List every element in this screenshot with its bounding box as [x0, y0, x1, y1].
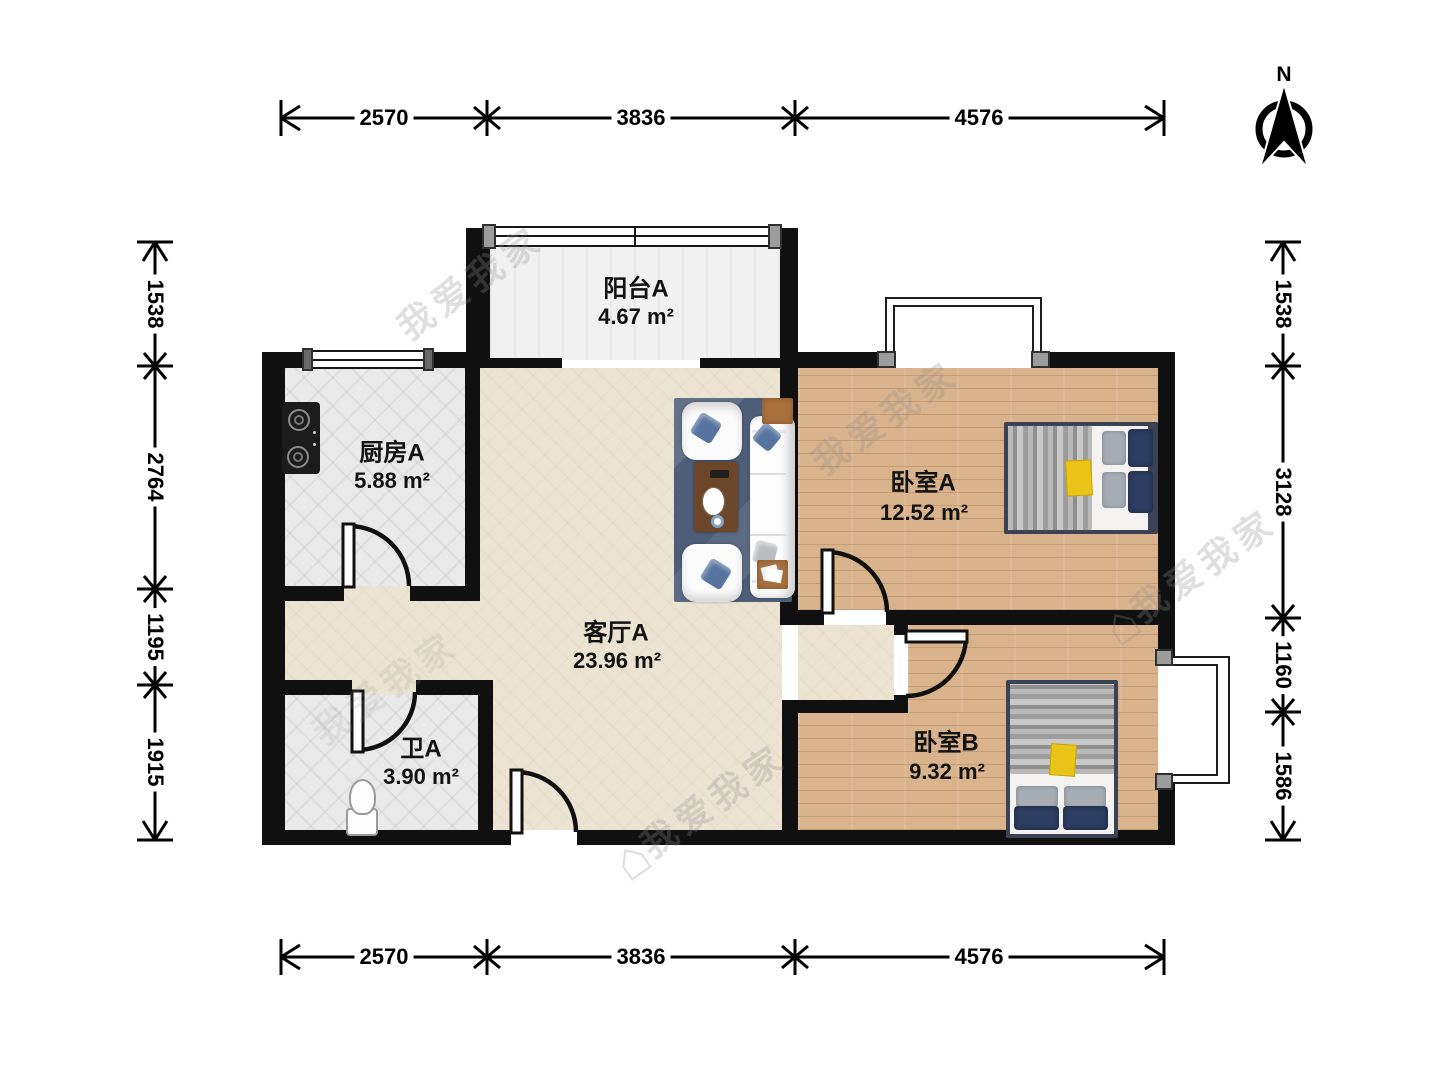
dim-right-1: 1538	[1270, 275, 1296, 334]
room-label-bedroom-b: 卧室B	[913, 723, 978, 758]
kitchen-door-arc	[349, 526, 409, 586]
dim-left-2: 2764	[142, 448, 168, 507]
room-area-balcony: 4.67 m²	[598, 304, 674, 330]
dim-bottom-2: 3836	[612, 944, 671, 970]
dim-right-4: 1586	[1270, 747, 1296, 806]
dim-bottom-3: 4576	[950, 944, 1009, 970]
bedroom-b-door-arc	[906, 636, 966, 696]
bedroom-b-door-leaf	[906, 631, 967, 642]
compass-north-label: N	[1276, 63, 1291, 87]
entry-door-leaf	[511, 770, 522, 833]
dimension-lines	[137, 100, 1301, 975]
room-label-balcony: 阳台A	[603, 269, 668, 304]
room-area-bedroom-a: 12.52 m²	[880, 500, 968, 526]
compass-icon	[1259, 84, 1309, 168]
dim-right-3: 1160	[1270, 636, 1296, 694]
room-area-bedroom-b: 9.32 m²	[909, 759, 985, 785]
dim-left-4: 1915	[142, 733, 168, 792]
room-area-kitchen: 5.88 m²	[354, 468, 430, 494]
room-label-bedroom-a: 卧室A	[890, 463, 955, 498]
bedroom-a-door-arc	[827, 552, 887, 612]
dim-bottom-1: 2570	[355, 944, 414, 970]
bedroom-a-door-leaf	[822, 550, 833, 613]
room-area-bathroom: 3.90 m²	[383, 764, 459, 790]
room-label-bathroom: 卫A	[400, 729, 441, 764]
floor-plan: 我爱我家 我爱我家 ⌂我爱我家 ⌂我爱我家 我爱我家 阳台A 4.67 m² 厨…	[0, 0, 1440, 1080]
dim-right-2: 3128	[1270, 463, 1296, 522]
dim-left-3: 1195	[142, 608, 168, 666]
dim-top-2: 3836	[612, 105, 671, 131]
room-label-living: 客厅A	[583, 613, 648, 648]
dim-left-1: 1538	[142, 275, 168, 334]
dim-top-1: 2570	[355, 105, 414, 131]
entry-door-arc	[516, 772, 576, 832]
kitchen-door-leaf	[343, 524, 354, 587]
room-area-living: 23.96 m²	[573, 648, 661, 674]
room-label-kitchen: 厨房A	[359, 433, 424, 468]
dim-top-3: 4576	[950, 105, 1009, 131]
